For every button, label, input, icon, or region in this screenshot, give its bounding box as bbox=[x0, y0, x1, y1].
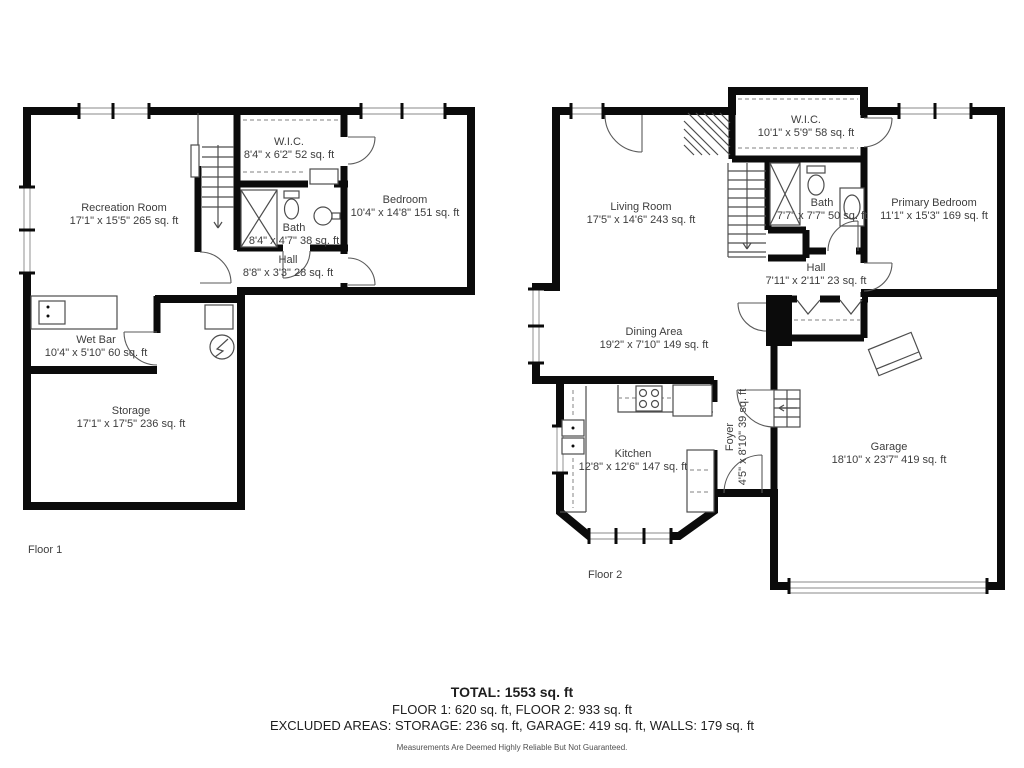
floor2-windows bbox=[528, 103, 988, 594]
room-name: W.I.C. bbox=[758, 114, 854, 127]
room-dims: 8'8" x 3'3" 28 sq. ft bbox=[243, 267, 333, 280]
floor2-label: Floor 2 bbox=[588, 569, 622, 581]
room-label-bedroom: Bedroom 10'4" x 14'8" 151 sq. ft bbox=[351, 194, 460, 220]
floor1-windows bbox=[19, 103, 446, 274]
room-label-dining-area: Dining Area 19'2" x 7'10" 149 sq. ft bbox=[600, 326, 709, 352]
room-label-bath-floor2: Bath 7'7" x 7'7" 50 sq. ft bbox=[777, 197, 867, 223]
room-dims: 8'4" x 4'7" 38 sq. ft bbox=[249, 235, 339, 248]
room-name: Hall bbox=[766, 262, 867, 275]
area-summary: TOTAL: 1553 sq. ft FLOOR 1: 620 sq. ft, … bbox=[0, 684, 1024, 752]
room-name: Dining Area bbox=[600, 326, 709, 339]
room-name: Garage bbox=[832, 441, 947, 454]
room-dims: 17'5" x 14'6" 243 sq. ft bbox=[587, 214, 696, 227]
water-heater-icon bbox=[205, 305, 233, 329]
room-dims: 10'4" x 5'10" 60 sq. ft bbox=[45, 347, 148, 360]
room-dims: 12'8" x 12'6" 147 sq. ft bbox=[579, 461, 688, 474]
total-area-text: TOTAL: 1553 sq. ft bbox=[0, 684, 1024, 700]
floor1-label: Floor 1 bbox=[28, 544, 62, 556]
room-label-hall-floor2: Hall 7'11" x 2'11" 23 sq. ft bbox=[766, 262, 867, 288]
room-label-garage: Garage 18'10" x 23'7" 419 sq. ft bbox=[832, 441, 947, 467]
room-label-recreation-room: Recreation Room 17'1" x 15'5" 265 sq. ft bbox=[70, 202, 179, 228]
disclaimer-text: Measurements Are Deemed Highly Reliable … bbox=[0, 743, 1024, 752]
room-name: Hall bbox=[243, 254, 333, 267]
room-label-kitchen: Kitchen 12'8" x 12'6" 147 sq. ft bbox=[579, 448, 688, 474]
room-dims: 7'11" x 2'11" 23 sq. ft bbox=[766, 275, 867, 288]
floor-areas-text: FLOOR 1: 620 sq. ft, FLOOR 2: 933 sq. ft bbox=[0, 702, 1024, 717]
room-label-wet-bar: Wet Bar 10'4" x 5'10" 60 sq. ft bbox=[45, 334, 148, 360]
room-dims: 17'1" x 15'5" 265 sq. ft bbox=[70, 215, 179, 228]
pantry-cabinet bbox=[687, 450, 714, 512]
room-dims: 18'10" x 23'7" 419 sq. ft bbox=[832, 454, 947, 467]
room-label-bath-floor1: Bath 8'4" x 4'7" 38 sq. ft bbox=[249, 222, 339, 248]
toilet-icon bbox=[284, 191, 299, 219]
floor1-utility bbox=[205, 305, 234, 359]
room-name: Bath bbox=[249, 222, 339, 235]
room-name: Bedroom bbox=[351, 194, 460, 207]
room-dims: 17'1" x 17'5" 236 sq. ft bbox=[77, 418, 186, 431]
room-dims: 11'1" x 15'3" 169 sq. ft bbox=[880, 210, 988, 223]
room-dims: 7'7" x 7'7" 50 sq. ft bbox=[777, 210, 867, 223]
room-label-living-room: Living Room 17'5" x 14'6" 243 sq. ft bbox=[587, 201, 696, 227]
room-dims: 10'1" x 5'9" 58 sq. ft bbox=[758, 127, 854, 140]
floor2-stairs-icon bbox=[684, 113, 766, 257]
floor-plan-page: Recreation Room 17'1" x 15'5" 265 sq. ft… bbox=[0, 0, 1024, 768]
room-dims: 4'5" x 8'10" 39 sq. ft bbox=[737, 389, 750, 485]
room-name: Storage bbox=[77, 405, 186, 418]
room-label-hall-floor1: Hall 8'8" x 3'3" 28 sq. ft bbox=[243, 254, 333, 280]
room-name: Primary Bedroom bbox=[880, 197, 988, 210]
garage-steps-icon bbox=[774, 390, 800, 427]
room-name: Kitchen bbox=[579, 448, 688, 461]
room-name: Bath bbox=[777, 197, 867, 210]
room-dims: 19'2" x 7'10" 149 sq. ft bbox=[600, 339, 709, 352]
floor2-garage-fixtures bbox=[774, 332, 922, 427]
room-name: Living Room bbox=[587, 201, 696, 214]
room-name: Foyer bbox=[724, 389, 737, 485]
electrical-panel-icon bbox=[210, 335, 234, 359]
excluded-areas-text: EXCLUDED AREAS: STORAGE: 236 sq. ft, GAR… bbox=[0, 718, 1024, 733]
room-label-wic-floor1: W.I.C. 8'4" x 6'2" 52 sq. ft bbox=[244, 136, 334, 162]
room-dims: 10'4" x 14'8" 151 sq. ft bbox=[351, 207, 460, 220]
room-label-primary-bedroom: Primary Bedroom 11'1" x 15'3" 169 sq. ft bbox=[880, 197, 988, 223]
toilet-icon bbox=[807, 166, 825, 195]
room-label-foyer: Foyer 4'5" x 8'10" 39 sq. ft bbox=[724, 389, 750, 485]
room-label-storage: Storage 17'1" x 17'5" 236 sq. ft bbox=[77, 405, 186, 431]
floor-plan-canvas bbox=[0, 0, 1024, 768]
stove-icon bbox=[636, 386, 662, 411]
room-dims: 8'4" x 6'2" 52 sq. ft bbox=[244, 149, 334, 162]
room-label-wic-floor2: W.I.C. 10'1" x 5'9" 58 sq. ft bbox=[758, 114, 854, 140]
fridge-icon bbox=[673, 385, 712, 416]
room-name: Recreation Room bbox=[70, 202, 179, 215]
room-name: W.I.C. bbox=[244, 136, 334, 149]
garage-door bbox=[788, 578, 988, 594]
furnace-icon bbox=[868, 332, 921, 375]
floor1-wet-bar-counter bbox=[31, 296, 117, 329]
room-name: Wet Bar bbox=[45, 334, 148, 347]
